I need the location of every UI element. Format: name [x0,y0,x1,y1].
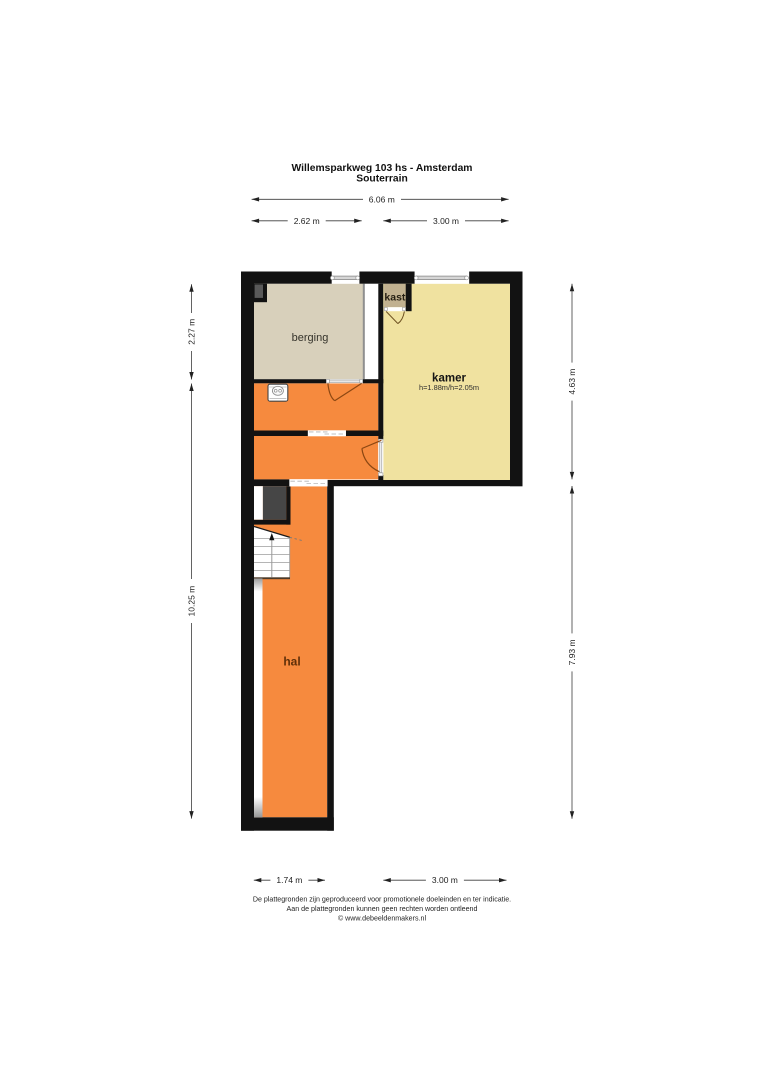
svg-text:kast: kast [384,291,406,303]
svg-text:10.25 m: 10.25 m [187,586,197,617]
svg-text:3.00 m: 3.00 m [433,216,459,226]
svg-text:1.74 m: 1.74 m [276,875,302,885]
svg-text:2.62 m: 2.62 m [294,216,320,226]
svg-text:2.27 m: 2.27 m [187,319,197,345]
svg-text:4.63 m: 4.63 m [567,369,577,395]
svg-text:hal: hal [283,654,300,668]
svg-text:Aan de plattegronden kunnen ge: Aan de plattegronden kunnen geen rechten… [287,905,478,913]
svg-text:7.93 m: 7.93 m [567,639,577,665]
svg-text:Willemsparkweg 103 hs - Amster: Willemsparkweg 103 hs - Amsterdam [292,163,473,174]
svg-text:De plattegronden zijn geproduc: De plattegronden zijn geproduceerd voor … [253,896,511,904]
svg-text:berging: berging [292,332,329,344]
svg-text:6.06 m: 6.06 m [369,194,395,204]
svg-text:3.00 m: 3.00 m [432,875,458,885]
svg-text:h=1.88m/h=2.05m: h=1.88m/h=2.05m [419,383,479,392]
svg-text:© www.debeeldenmakers.nl: © www.debeeldenmakers.nl [338,915,426,923]
svg-text:Souterrain: Souterrain [356,173,408,184]
